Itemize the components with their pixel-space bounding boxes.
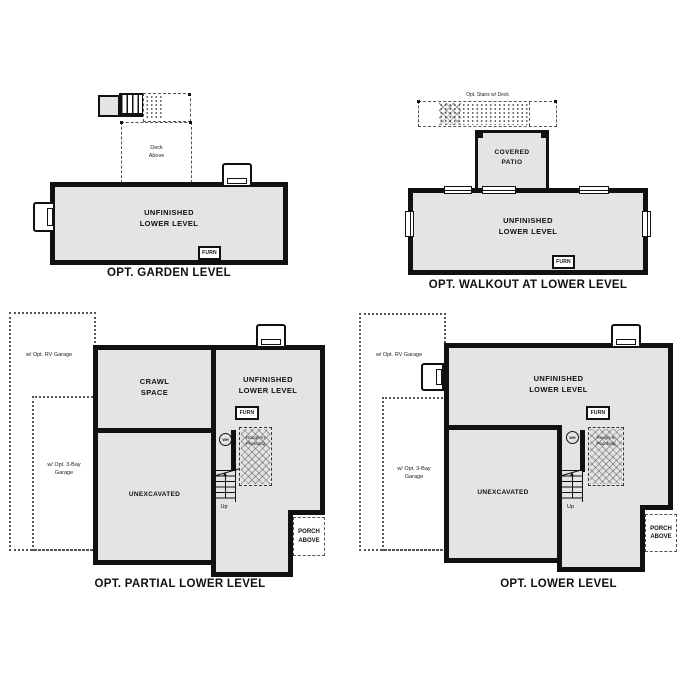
rv-garage-option-label: w/ Opt. RV Garage [9, 352, 89, 358]
window [436, 369, 442, 385]
deck-stairs-hatch [439, 103, 461, 125]
plan-title-walkout: OPT. WALKOUT AT LOWER LEVEL [408, 279, 648, 291]
window [482, 186, 516, 194]
wall-segment [320, 345, 325, 515]
unfinished-label: UNFINISHED LOWER LEVEL [449, 352, 668, 416]
unfinished-label: UNFINISHED LOWER LEVEL [216, 352, 320, 418]
wall-segment [93, 560, 216, 565]
porch-above-area: PORCH ABOVE [645, 514, 677, 552]
wall-segment [93, 428, 216, 433]
stair-landing [98, 95, 120, 117]
plan-title-garden: OPT. GARDEN LEVEL [50, 267, 288, 279]
room-unfinished-label: UNFINISHED LOWER LEVEL [413, 193, 643, 259]
rough-in-plumbing-area: Rough-In Plumbing [239, 427, 272, 486]
crawl-space-label: CRAWL SPACE [98, 350, 211, 424]
covered-patio: COVERED PATIO [475, 130, 549, 191]
wall-segment [444, 425, 562, 430]
deck-above-area: Deck Above [121, 122, 192, 183]
stair-arrow [225, 476, 226, 498]
furnace-label: FURN [202, 250, 217, 256]
window-well-top-right [222, 163, 252, 187]
furnace-label: FURN [591, 410, 606, 416]
wall-segment-stair [231, 430, 236, 472]
water-heater-label: WH [569, 436, 575, 440]
patio-post [477, 132, 483, 138]
water-heater-circle: WH [566, 431, 579, 444]
wall-segment [444, 558, 562, 563]
rough-in-plumbing-area: Rough-In Plumbing [588, 427, 624, 486]
porch-above-label: PORCH ABOVE [650, 525, 672, 542]
wall-segment [557, 567, 645, 572]
rv-garage-option-label: w/ Opt. RV Garage [359, 352, 439, 358]
window [642, 211, 651, 237]
deck-divider [529, 102, 530, 126]
wall-segment [668, 343, 673, 510]
window [444, 186, 472, 194]
deck-board-hatch [145, 95, 162, 120]
unexcavated-label: UNEXCAVATED [98, 491, 211, 498]
furnace-box: FURN [198, 246, 221, 260]
plan-title-partial: OPT. PARTIAL LOWER LEVEL [60, 578, 300, 590]
window [47, 208, 53, 226]
wall-segment [288, 510, 325, 515]
up-label: Up [214, 504, 234, 510]
window [227, 178, 247, 184]
furnace-box: FURN [235, 406, 259, 420]
rough-in-label: Rough-In Plumbing [589, 435, 623, 446]
window [579, 186, 609, 194]
water-heater-circle: WH [219, 433, 232, 446]
furnace-box: FURN [552, 255, 575, 269]
furnace-label: FURN [556, 259, 571, 265]
window [405, 211, 414, 237]
deck-stair-strip [143, 93, 191, 122]
rough-in-label: Rough-In Plumbing [240, 435, 271, 446]
covered-patio-label: COVERED PATIO [478, 133, 546, 182]
patio-post [541, 132, 547, 138]
furnace-label: FURN [240, 410, 255, 416]
porch-above-area: PORCH ABOVE [293, 517, 325, 556]
corner-marker [188, 93, 191, 96]
furnace-box: FURN [586, 406, 610, 420]
stairs [119, 93, 144, 117]
corner-marker [120, 121, 123, 124]
window-well-left [33, 202, 55, 232]
window [261, 339, 281, 345]
unexcavated-label: UNEXCAVATED [449, 489, 557, 496]
corner-marker [417, 100, 420, 103]
stair-arrow [572, 476, 573, 498]
three-bay-garage-option-label: w/ Opt. 3-Bay Garage [32, 462, 96, 477]
window-well-left [421, 363, 444, 391]
water-heater-label: WH [222, 438, 228, 442]
wall-segment-stair [580, 430, 585, 472]
wall-segment [211, 428, 216, 577]
porch-above-label: PORCH ABOVE [298, 528, 320, 545]
plan-title-lower: OPT. LOWER LEVEL [444, 578, 673, 590]
window-well-top-right [611, 324, 641, 348]
deck-above-label: Deck Above [122, 145, 191, 160]
opt-stairs-deck-label: Opt. Stairs w/ Deck [418, 92, 557, 98]
window-well-top-right [256, 324, 286, 348]
wall-segment [211, 572, 293, 577]
opt-stairs-deck-area [418, 101, 557, 127]
corner-marker [554, 100, 557, 103]
corner-marker [189, 121, 192, 124]
window [616, 339, 636, 345]
up-label: Up [560, 504, 581, 510]
three-bay-garage-option-label: w/ Opt. 3-Bay Garage [382, 466, 446, 481]
room-unfinished-label: UNFINISHED LOWER LEVEL [55, 187, 283, 249]
floorplan-sheet: Deck Above UNFINISHED LOWER LEVEL FURN O… [0, 0, 687, 687]
